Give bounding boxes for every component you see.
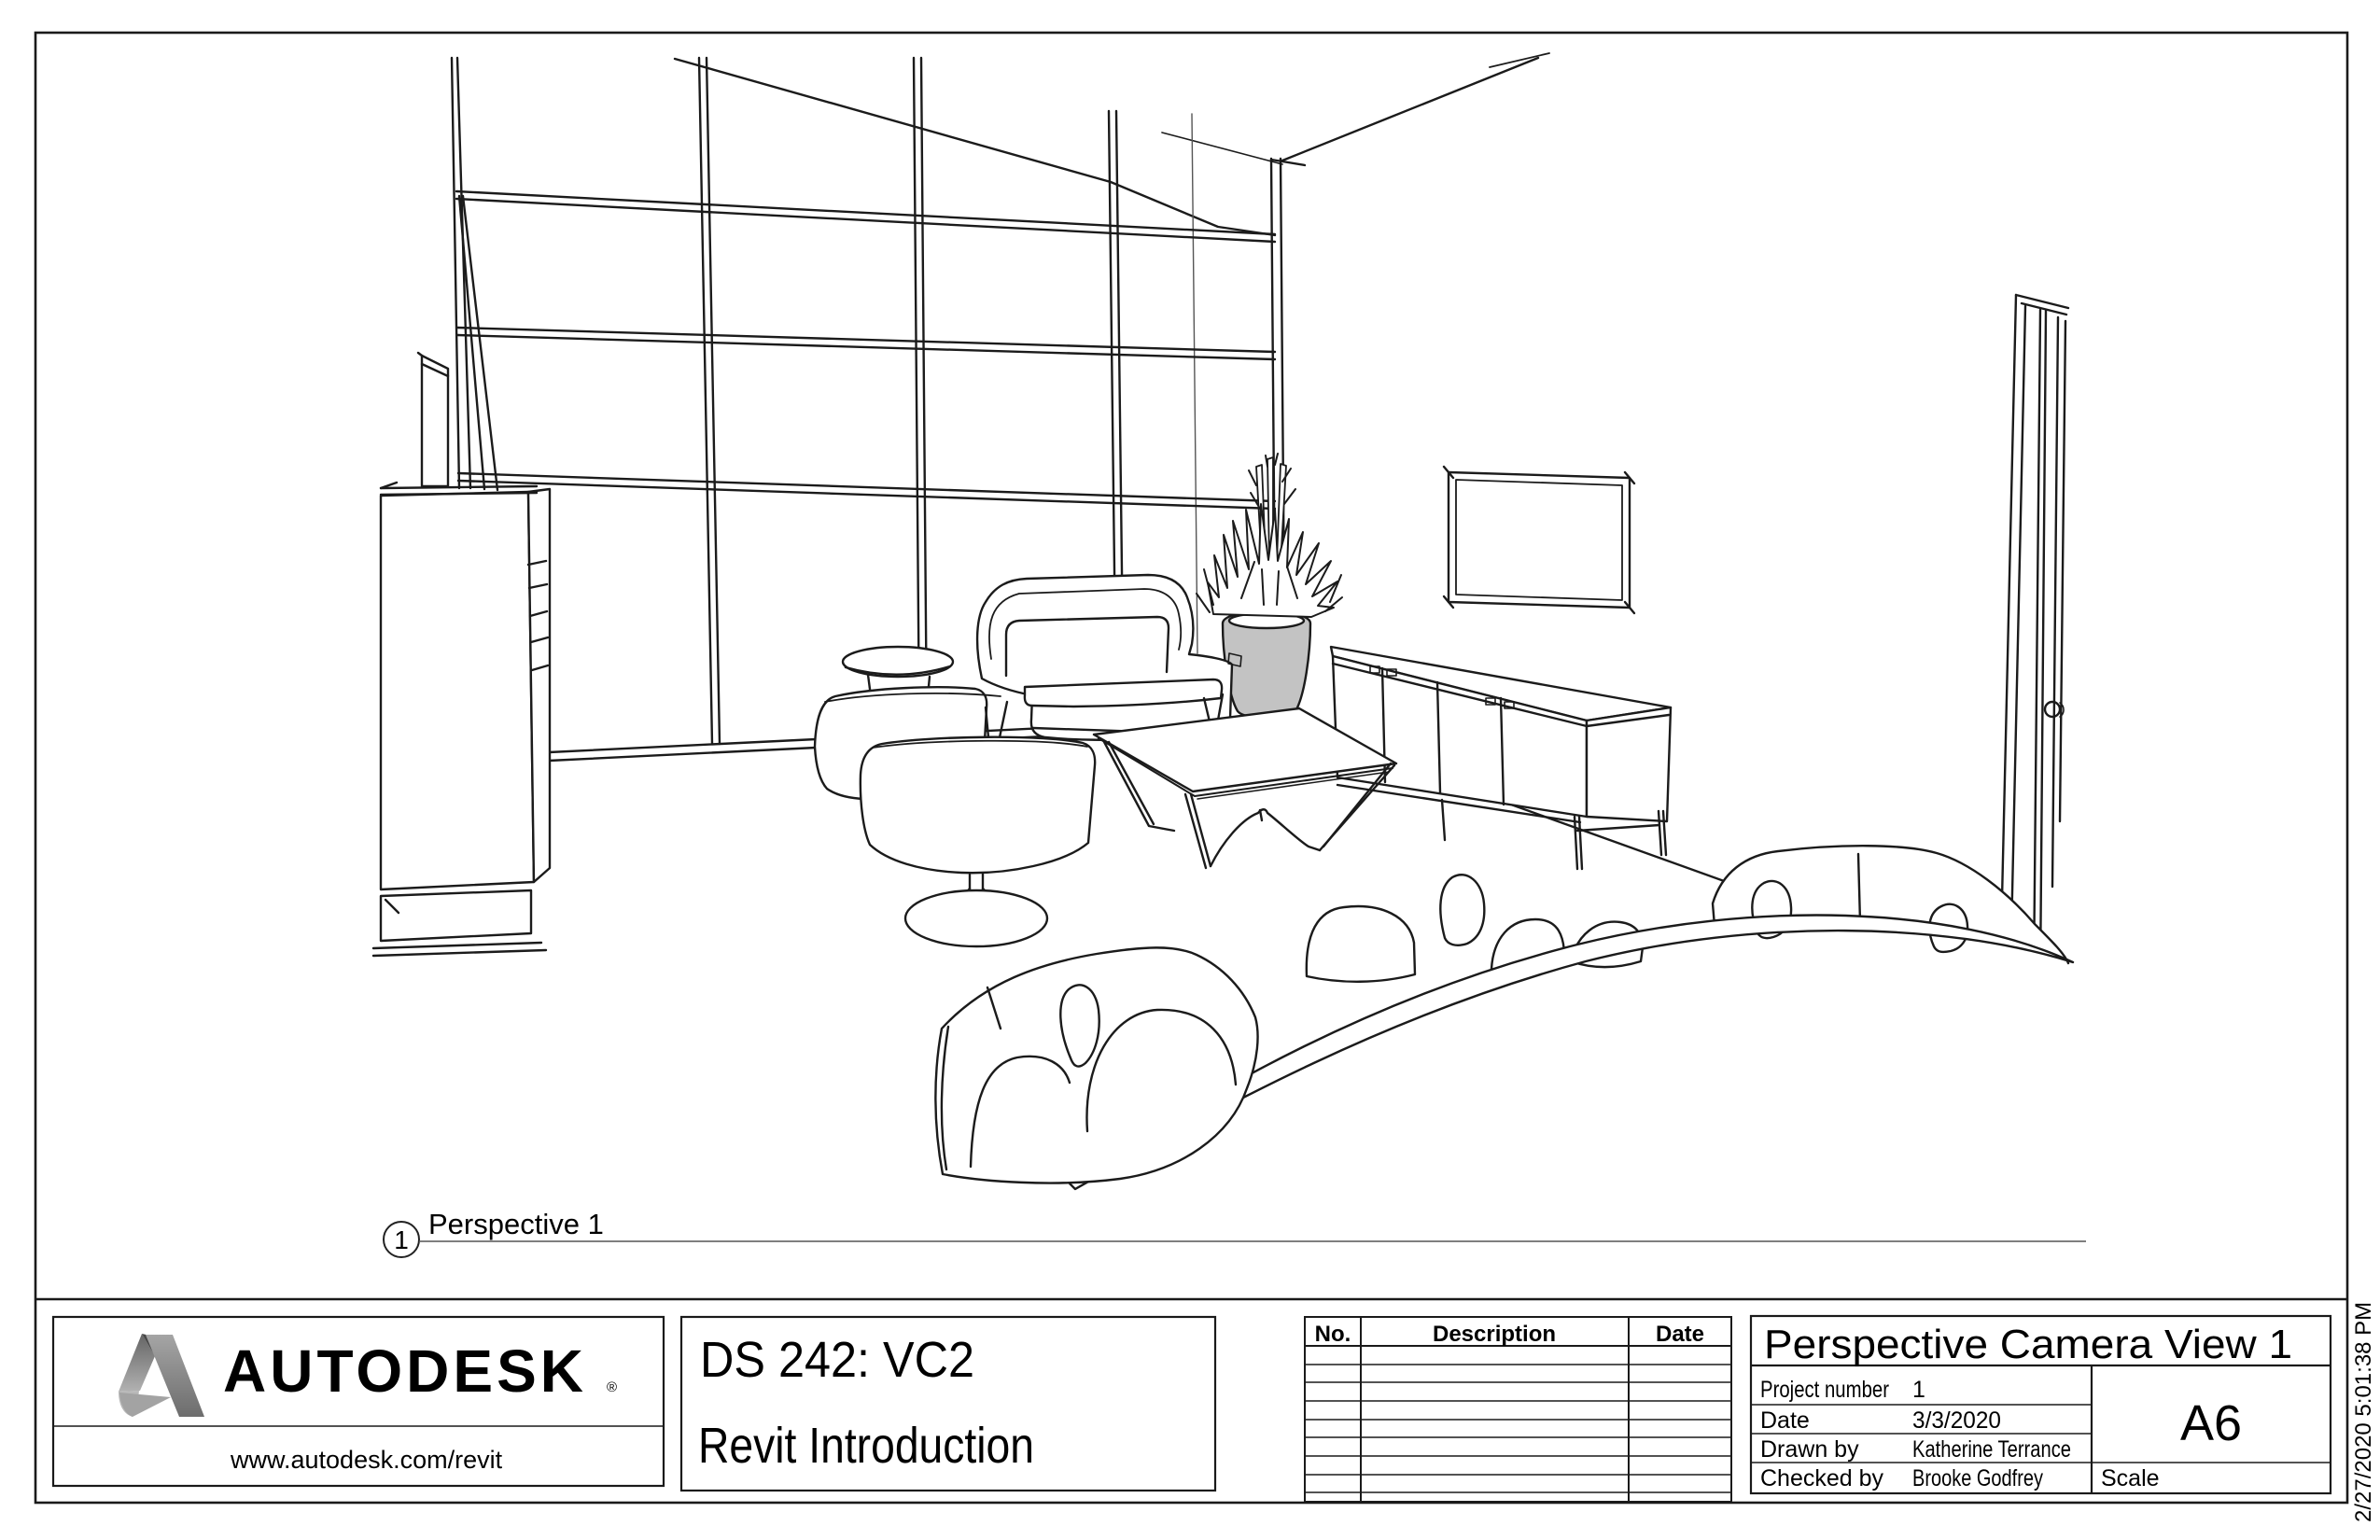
svg-text:®: ® — [607, 1379, 617, 1395]
svg-text:Description: Description — [1433, 1322, 1556, 1347]
svg-text:Perspective 1: Perspective 1 — [428, 1208, 604, 1240]
svg-text:Revit Introduction: Revit Introduction — [698, 1418, 1034, 1474]
svg-text:Checked by: Checked by — [1760, 1465, 1884, 1491]
svg-text:Scale: Scale — [2101, 1465, 2160, 1491]
svg-text:1: 1 — [1912, 1377, 1925, 1403]
svg-text:www.autodesk.com/revit: www.autodesk.com/revit — [230, 1446, 503, 1474]
svg-text:3/3/2020: 3/3/2020 — [1912, 1407, 2001, 1434]
svg-text:A6: A6 — [2180, 1395, 2242, 1451]
svg-text:Project number: Project number — [1760, 1377, 1889, 1403]
svg-text:Date: Date — [1760, 1407, 1810, 1434]
svg-text:Katherine Terrance: Katherine Terrance — [1912, 1436, 2071, 1463]
svg-text:2/27/2020 5:01:38 PM: 2/27/2020 5:01:38 PM — [2351, 1302, 2376, 1522]
svg-text:Date: Date — [1656, 1322, 1704, 1347]
svg-text:Perspective Camera View 1: Perspective Camera View 1 — [1764, 1322, 2292, 1367]
svg-text:No.: No. — [1315, 1322, 1351, 1347]
svg-text:1: 1 — [394, 1225, 409, 1254]
svg-text:AUTODESK: AUTODESK — [223, 1337, 587, 1405]
svg-text:Drawn by: Drawn by — [1760, 1436, 1859, 1463]
svg-text:Brooke Godfrey: Brooke Godfrey — [1912, 1465, 2043, 1491]
svg-text:DS 242: VC2: DS 242: VC2 — [700, 1332, 974, 1388]
